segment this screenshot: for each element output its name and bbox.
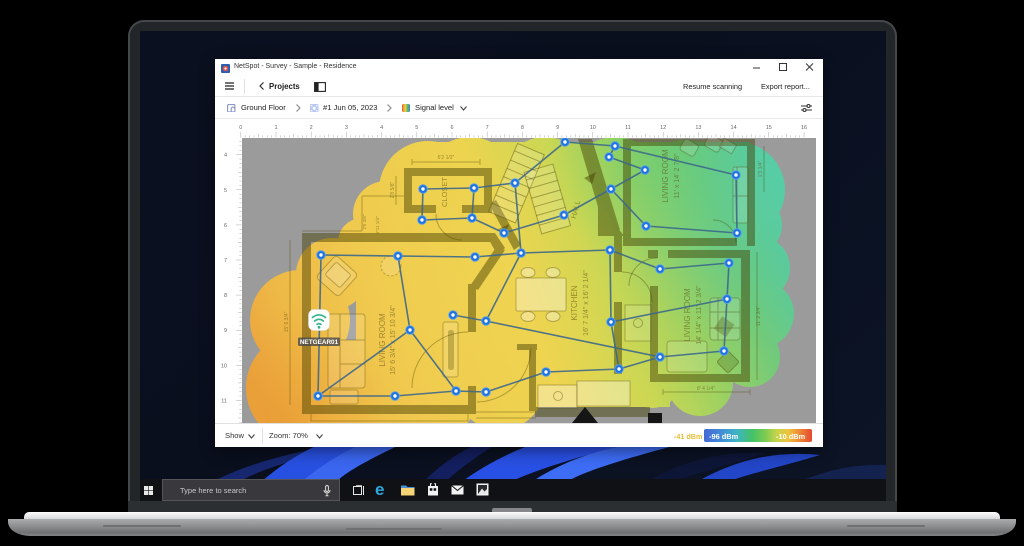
svg-text:6: 6 <box>450 125 453 131</box>
svg-text:7: 7 <box>224 258 227 264</box>
svg-text:13: 13 <box>695 125 701 131</box>
svg-text:LIVING ROOM: LIVING ROOM <box>683 288 692 342</box>
svg-text:14' 1/4" x 11' 2 3/4": 14' 1/4" x 11' 2 3/4" <box>696 285 703 345</box>
svg-text:10: 10 <box>590 125 596 131</box>
svg-text:1'3 1/4": 1'3 1/4" <box>758 160 764 177</box>
svg-text:7: 7 <box>486 125 489 131</box>
svg-text:12: 12 <box>660 125 666 131</box>
svg-text:6: 6 <box>224 223 227 229</box>
svg-text:LIVING ROOM: LIVING ROOM <box>378 313 387 367</box>
svg-text:5: 5 <box>415 125 418 131</box>
svg-text:KITCHEN: KITCHEN <box>570 285 579 320</box>
svg-text:10: 10 <box>221 363 227 369</box>
svg-text:16: 16 <box>801 125 807 131</box>
svg-text:9: 9 <box>224 328 227 334</box>
svg-text:11: 11 <box>221 398 227 404</box>
svg-text:4: 4 <box>380 125 383 131</box>
svg-text:15: 15 <box>766 125 772 131</box>
svg-text:3: 3 <box>345 125 348 131</box>
svg-text:2'6 3/8": 2'6 3/8" <box>362 214 367 229</box>
svg-text:NETGEAR01: NETGEAR01 <box>300 339 339 346</box>
svg-text:CLOSET: CLOSET <box>440 177 449 207</box>
svg-text:2'8 5/8": 2'8 5/8" <box>390 181 396 198</box>
svg-text:9: 9 <box>556 125 559 131</box>
svg-text:8: 8 <box>521 125 524 131</box>
svg-text:6'2 1/2": 6'2 1/2" <box>437 155 454 161</box>
svg-text:5: 5 <box>224 188 227 194</box>
svg-text:0: 0 <box>239 125 242 131</box>
svg-text:11: 11 <box>625 125 631 131</box>
svg-text:15' 6 3/4": 15' 6 3/4" <box>284 311 290 332</box>
svg-text:8' 4 1/4": 8' 4 1/4" <box>697 386 715 392</box>
svg-text:2: 2 <box>310 125 313 131</box>
svg-text:16' 7 1/4" x 16' 2 1/4": 16' 7 1/4" x 16' 2 1/4" <box>583 270 590 336</box>
svg-text:11' 2 3/4": 11' 2 3/4" <box>756 306 762 327</box>
svg-text:14: 14 <box>731 125 737 131</box>
svg-text:4: 4 <box>224 153 227 159</box>
svg-text:8: 8 <box>224 293 227 299</box>
svg-text:1: 1 <box>274 125 277 131</box>
svg-text:7'11 1/4": 7'11 1/4" <box>375 216 380 234</box>
